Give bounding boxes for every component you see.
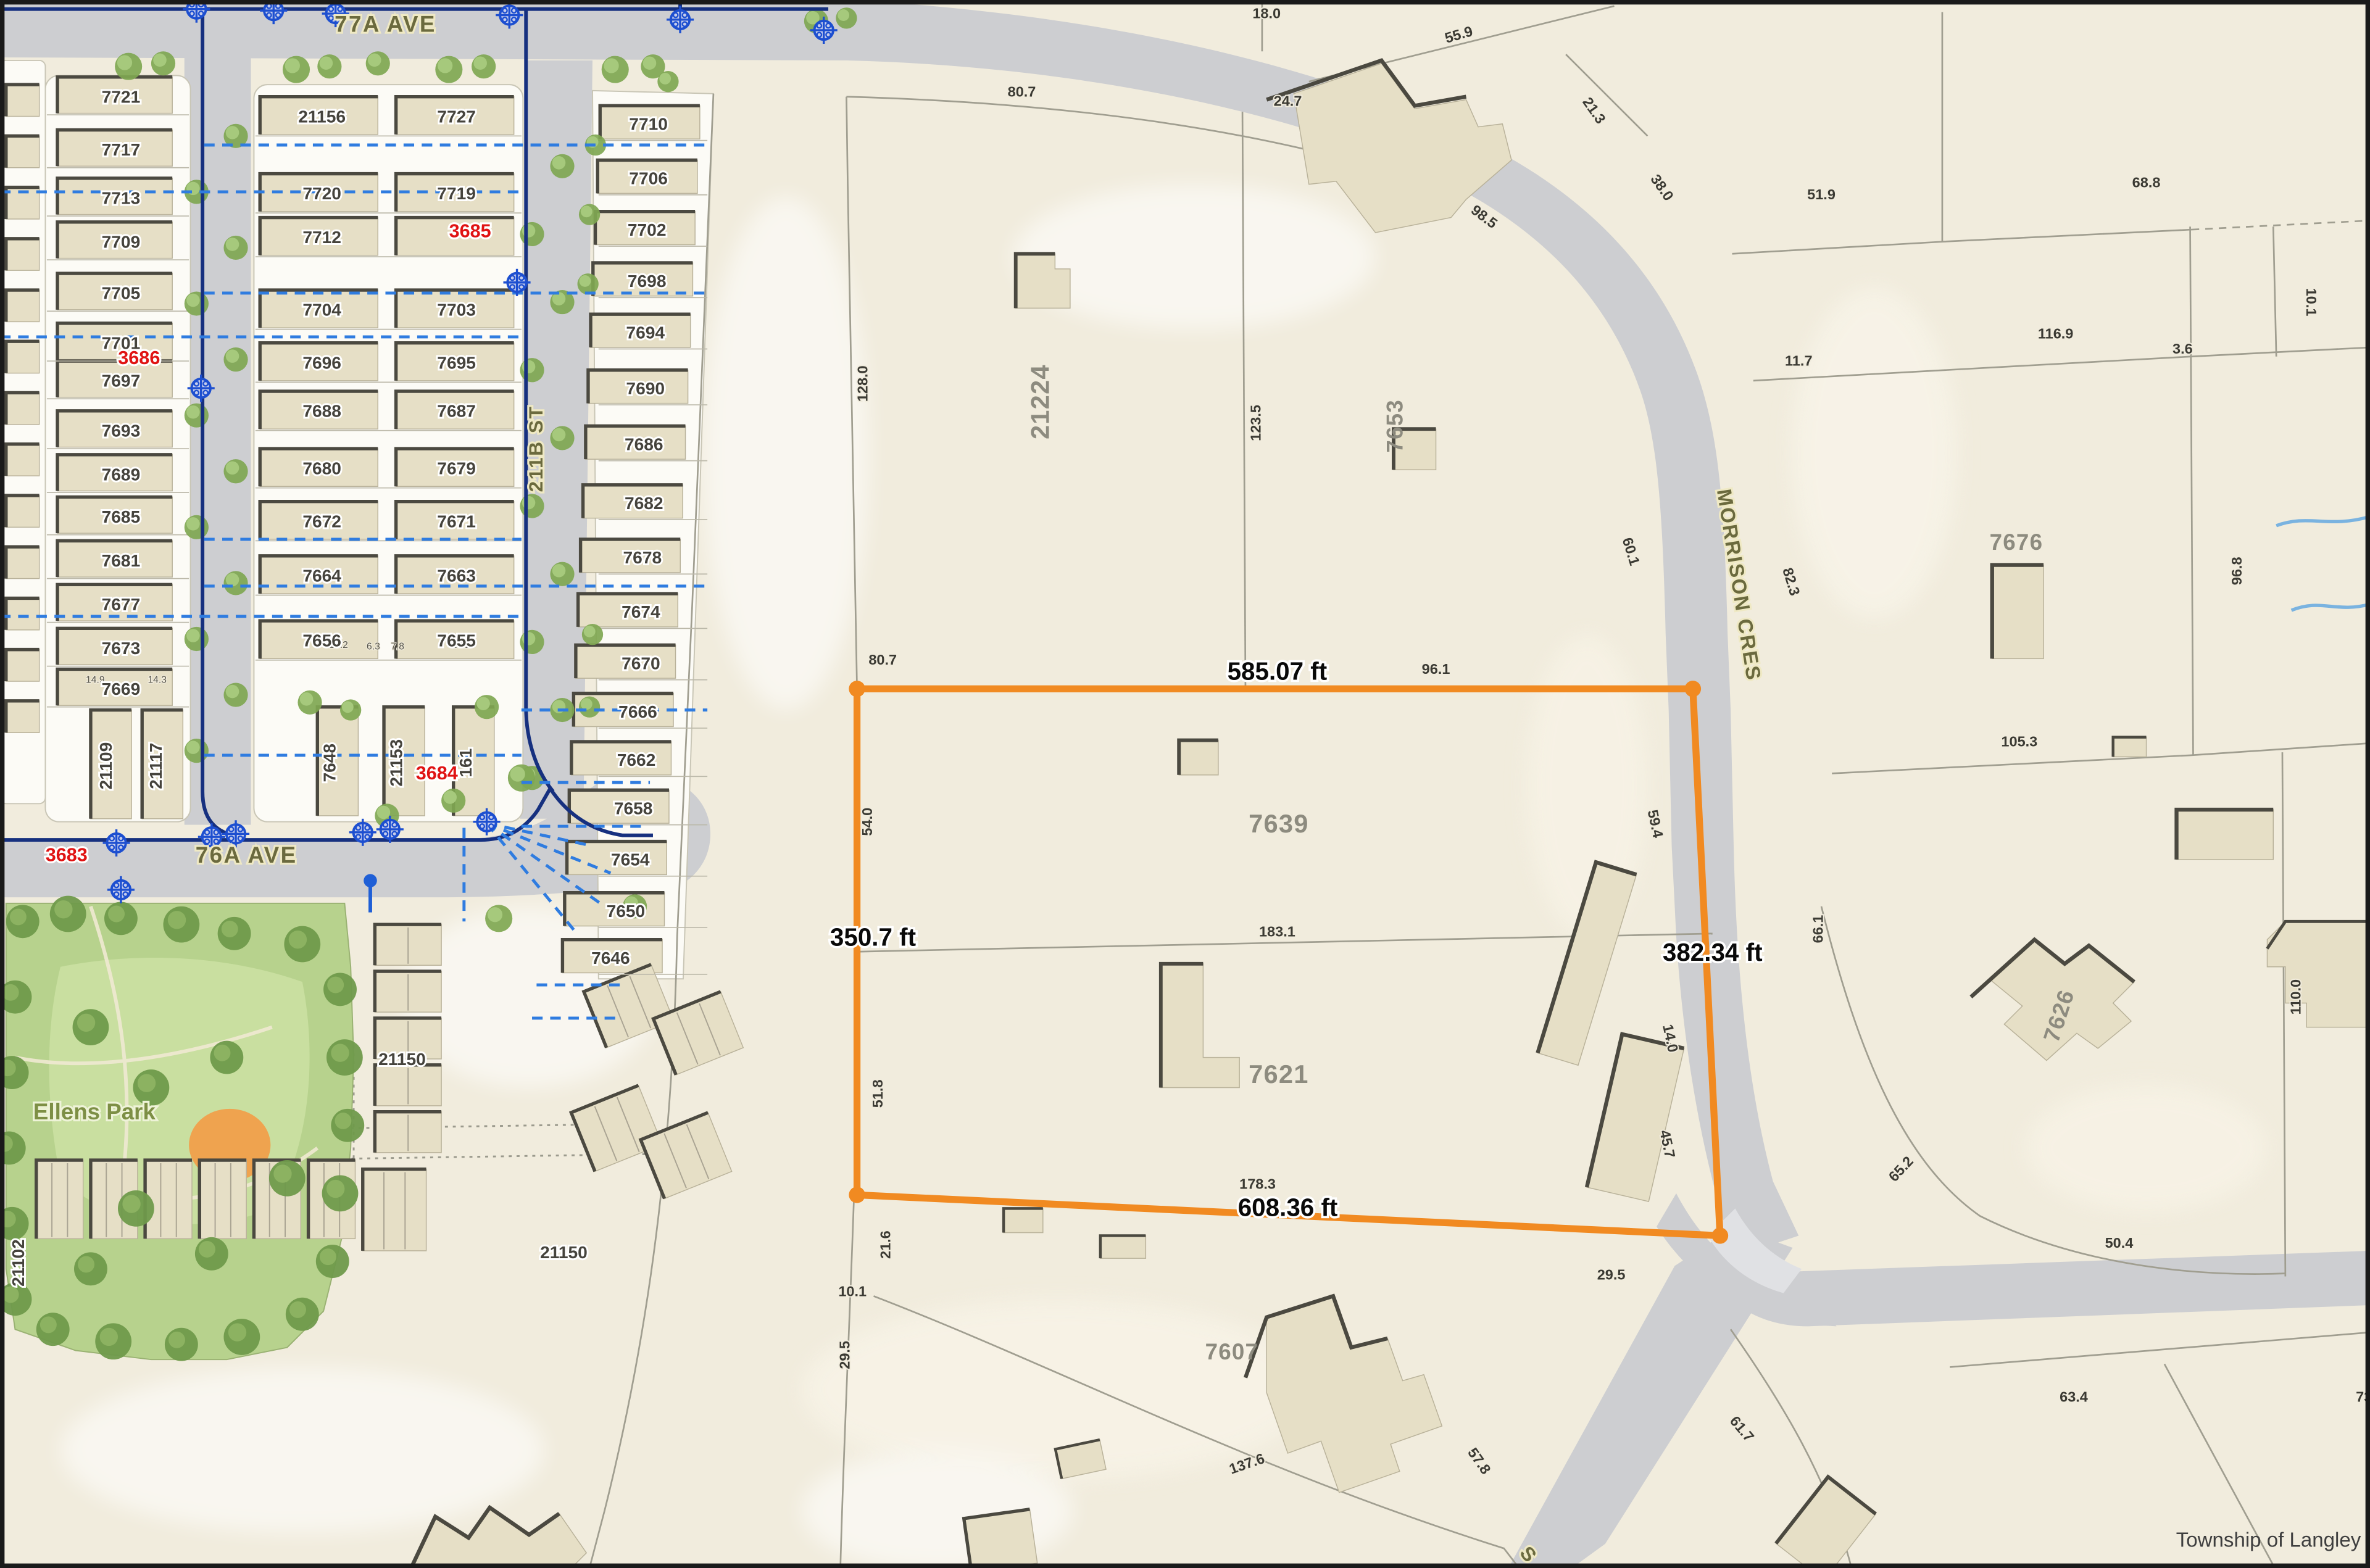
park-tree-icon	[6, 905, 39, 938]
tree-icon	[520, 358, 544, 382]
lot-number-label: 7621	[1249, 1060, 1308, 1089]
tree-icon	[578, 273, 599, 294]
dimension-label: 10.1	[838, 1283, 867, 1299]
building	[6, 650, 39, 681]
house-number-label: 7670	[622, 653, 660, 673]
building	[6, 701, 39, 732]
dimension-label: 29.5	[1597, 1266, 1626, 1282]
building	[6, 547, 39, 578]
building	[6, 341, 39, 373]
lot-number-label: 7653	[1382, 399, 1408, 453]
tree-icon	[435, 56, 462, 83]
dimension-label: 96.1	[1422, 661, 1450, 677]
tree-icon	[317, 54, 341, 78]
building	[363, 1169, 426, 1251]
dimension-label: 123.5	[1247, 405, 1263, 441]
tree-icon	[441, 789, 465, 813]
tree-icon	[223, 236, 247, 260]
house-number-label: 7702	[628, 220, 667, 239]
park-tree-icon	[195, 1237, 228, 1271]
park-tree-icon	[165, 1328, 198, 1361]
tree-icon	[185, 739, 209, 763]
park-tree-icon	[104, 902, 138, 935]
park-tree-icon	[118, 1190, 154, 1227]
lot-number-label: 7676	[1990, 529, 2044, 555]
house-number-label: 7712	[302, 228, 341, 247]
house-number-label: 7704	[302, 301, 341, 320]
tree-icon	[223, 682, 247, 707]
house-number-label: 7720	[302, 184, 341, 203]
house-number-label: 7679	[437, 459, 476, 478]
building	[6, 85, 39, 116]
house-number-label: 7682	[625, 494, 663, 513]
park-tree-icon	[0, 981, 31, 1014]
attribution-label: Township of Langley	[2176, 1529, 2361, 1552]
dimension-label: 18.0	[1252, 5, 1281, 21]
tree-icon	[185, 404, 209, 428]
tree-icon	[151, 51, 175, 75]
tree-icon	[185, 515, 209, 539]
house-number-label: 21109	[96, 742, 115, 790]
dimension-label: 80.7	[1008, 84, 1036, 100]
tree-icon	[115, 53, 142, 80]
house-number-label: 7709	[102, 232, 141, 251]
lot-number-label: 21224	[1026, 364, 1055, 439]
park-layer	[6, 903, 354, 1359]
dimension-label: 21.6	[877, 1230, 893, 1259]
park-tree-icon	[0, 1282, 31, 1316]
house-number-label: 7673	[102, 639, 141, 658]
building	[6, 239, 39, 270]
house-number-label: 7685	[102, 507, 141, 526]
measurement-label: 382.34 ft	[1663, 938, 1763, 966]
dimension-label: 54.0	[859, 808, 875, 836]
building	[145, 1160, 192, 1238]
park-label: Ellens Park	[33, 1099, 156, 1124]
tree-icon	[283, 56, 310, 83]
tree-icon	[602, 56, 629, 83]
building	[199, 1160, 246, 1238]
park-tree-icon	[210, 1041, 243, 1074]
tree-icon	[340, 699, 361, 720]
house-number-label: 7672	[302, 512, 341, 531]
gis-map[interactable]: 18.055.921.338.080.724.798.551.968.83.61…	[0, 0, 2370, 1568]
dimension-label: 63.4	[2060, 1389, 2088, 1405]
park-tree-icon	[316, 1245, 349, 1278]
house-number-label: 7678	[623, 548, 662, 567]
tree-icon	[508, 765, 535, 792]
dimension-label: 128.0	[855, 365, 871, 402]
tree-icon	[579, 204, 600, 225]
house-number-label: 7666	[618, 702, 657, 721]
dimension-label: 68.8	[2132, 175, 2161, 191]
building	[6, 290, 39, 321]
building	[6, 392, 39, 424]
park-tree-icon	[326, 1039, 363, 1076]
house-number-label: 7677	[102, 595, 141, 614]
house-number-label: 7703	[437, 301, 476, 320]
parcel-vertex-sw[interactable]	[849, 1187, 865, 1203]
tree-icon	[550, 154, 574, 178]
tree-icon	[657, 71, 678, 92]
dimension-label: 24.7	[1274, 93, 1302, 109]
tree-icon	[366, 51, 390, 75]
tree-icon	[485, 905, 512, 932]
park-tree-icon	[95, 1323, 131, 1359]
tree-icon	[550, 562, 574, 586]
park-tree-icon	[50, 896, 86, 932]
tree-icon	[520, 630, 544, 654]
house-number-label: 7710	[629, 115, 668, 134]
house-number-label: 7658	[614, 799, 653, 818]
park-tree-icon	[269, 1160, 306, 1197]
park-tree-icon	[322, 1176, 359, 1212]
building	[6, 136, 39, 167]
house-number-label: 7713	[102, 188, 141, 207]
park-tree-icon	[163, 906, 199, 943]
house-number-label: 7695	[437, 353, 476, 372]
building	[375, 971, 441, 1012]
building	[36, 1160, 83, 1238]
house-number-label: 7688	[302, 402, 341, 421]
house-number-label: 7693	[102, 421, 141, 440]
measurement-label: 585.07 ft	[1228, 657, 1328, 686]
tree-icon	[223, 571, 247, 595]
park-tree-icon	[74, 1252, 107, 1285]
street-name-label: 76A AVE	[196, 842, 297, 868]
tree-icon	[836, 7, 857, 28]
house-number-label: 21117	[146, 743, 165, 789]
park-tree-icon	[218, 917, 251, 950]
tiny-dimension-label: 7.8	[391, 642, 404, 652]
street-name-label: 77A AVE	[335, 11, 436, 36]
plan-number-label: 3683	[46, 844, 88, 865]
dimension-label: 3.6	[2172, 341, 2193, 357]
measurement-label: 608.36 ft	[1238, 1193, 1338, 1222]
tree-icon	[472, 54, 496, 78]
house-number-label: 7656	[302, 631, 341, 650]
tree-icon	[185, 291, 209, 315]
house-number-label: 7698	[628, 272, 667, 291]
plan-number-label: 3684	[416, 763, 458, 784]
park-tree-icon	[223, 1319, 260, 1355]
house-number-label: 7650	[607, 902, 646, 921]
park-tree-icon	[286, 1298, 319, 1331]
house-number-label: 7727	[437, 107, 476, 126]
house-number-label: 21150	[378, 1050, 426, 1069]
park-tree-icon	[323, 973, 357, 1006]
house-number-label: 7687	[437, 402, 476, 421]
building	[6, 444, 39, 476]
parcel-vertex-nw[interactable]	[849, 681, 865, 697]
tiny-dimension-label: 6.3	[367, 642, 380, 652]
house-number-label: 161	[456, 749, 475, 778]
tree-icon	[520, 222, 544, 246]
dimension-label: 51.9	[1807, 186, 1836, 202]
dimension-label: 105.3	[2001, 733, 2037, 749]
house-number-label: 7719	[437, 184, 476, 203]
park-tree-icon	[284, 926, 320, 963]
parcel-vertex-se[interactable]	[1712, 1227, 1728, 1243]
house-number-label: 7689	[102, 465, 141, 484]
tiny-dimension-label: 14.3	[148, 674, 167, 685]
dimension-label: 116.9	[2038, 325, 2074, 341]
dimension-label: 80.7	[868, 652, 897, 668]
house-number-label: 7648	[320, 744, 339, 782]
dimension-label: 110.0	[2287, 979, 2303, 1015]
measurement-label: 350.7 ft	[830, 923, 916, 951]
tree-icon	[520, 494, 544, 518]
park-tree-icon	[331, 1109, 364, 1142]
dimension-label: 66.1	[1810, 915, 1826, 944]
park-tree-icon	[36, 1313, 70, 1346]
house-number-label: 7664	[302, 566, 341, 585]
tree-icon	[579, 697, 600, 718]
house-number-label: 7696	[302, 353, 341, 372]
house-number-label: 7669	[102, 679, 141, 699]
tree-icon	[550, 426, 574, 450]
dimension-label: 10.1	[2303, 288, 2319, 317]
dimension-label: 183.1	[1259, 924, 1295, 940]
house-number-label: 7646	[591, 948, 630, 968]
house-number-label: 7697	[102, 371, 141, 391]
house-number-label: 21150	[540, 1243, 588, 1262]
house-number-label: 7706	[629, 169, 668, 188]
parcel-vertex-ne[interactable]	[1685, 681, 1701, 697]
house-number-label: 21102	[9, 1239, 28, 1287]
building	[6, 598, 39, 629]
plan-number-label: 3686	[118, 347, 160, 368]
house-number-label: 7705	[102, 284, 141, 303]
tree-icon	[297, 691, 322, 715]
building	[375, 1112, 441, 1153]
dimension-label: 11.7	[1785, 352, 1812, 368]
dimension-label: 96.8	[2229, 557, 2245, 585]
plan-number-label: 3685	[449, 220, 491, 241]
house-number-label: 21153	[386, 739, 405, 787]
house-number-label: 7655	[437, 631, 476, 650]
tree-icon	[185, 627, 209, 651]
house-number-label: 7681	[102, 551, 141, 570]
building	[375, 924, 441, 965]
house-number-label: 7671	[437, 512, 476, 531]
lot-number-label: 7639	[1249, 809, 1308, 838]
house-number-label: 21156	[298, 107, 346, 126]
tree-icon	[223, 347, 247, 371]
tree-icon	[223, 459, 247, 483]
map-canvas[interactable]: 18.055.921.338.080.724.798.551.968.83.61…	[0, 0, 2370, 1568]
house-number-label: 7721	[102, 87, 141, 106]
tree-icon	[582, 624, 603, 645]
house-number-label: 7680	[302, 459, 341, 478]
dimension-label: 50.4	[2105, 1235, 2134, 1251]
building	[6, 496, 39, 527]
dimension-label: 51.8	[870, 1079, 886, 1108]
house-number-label: 7717	[102, 140, 141, 159]
house-number-label: 7690	[626, 379, 665, 398]
house-number-label: 7686	[625, 435, 663, 454]
lot-number-label: 7607	[1205, 1339, 1259, 1364]
house-number-label: 7663	[437, 566, 476, 585]
dimension-label: 29.5	[836, 1341, 852, 1369]
building	[375, 1065, 441, 1106]
dimension-label: 178.3	[1239, 1176, 1276, 1192]
street-name-label: 211B ST	[525, 405, 547, 492]
park-tree-icon	[73, 1009, 109, 1045]
street-left	[185, 57, 251, 825]
house-number-label: 7694	[626, 323, 665, 342]
house-number-label: 7674	[622, 602, 660, 621]
house-number-label: 7654	[611, 850, 650, 869]
house-number-label: 7662	[617, 750, 656, 769]
tree-icon	[475, 695, 499, 719]
